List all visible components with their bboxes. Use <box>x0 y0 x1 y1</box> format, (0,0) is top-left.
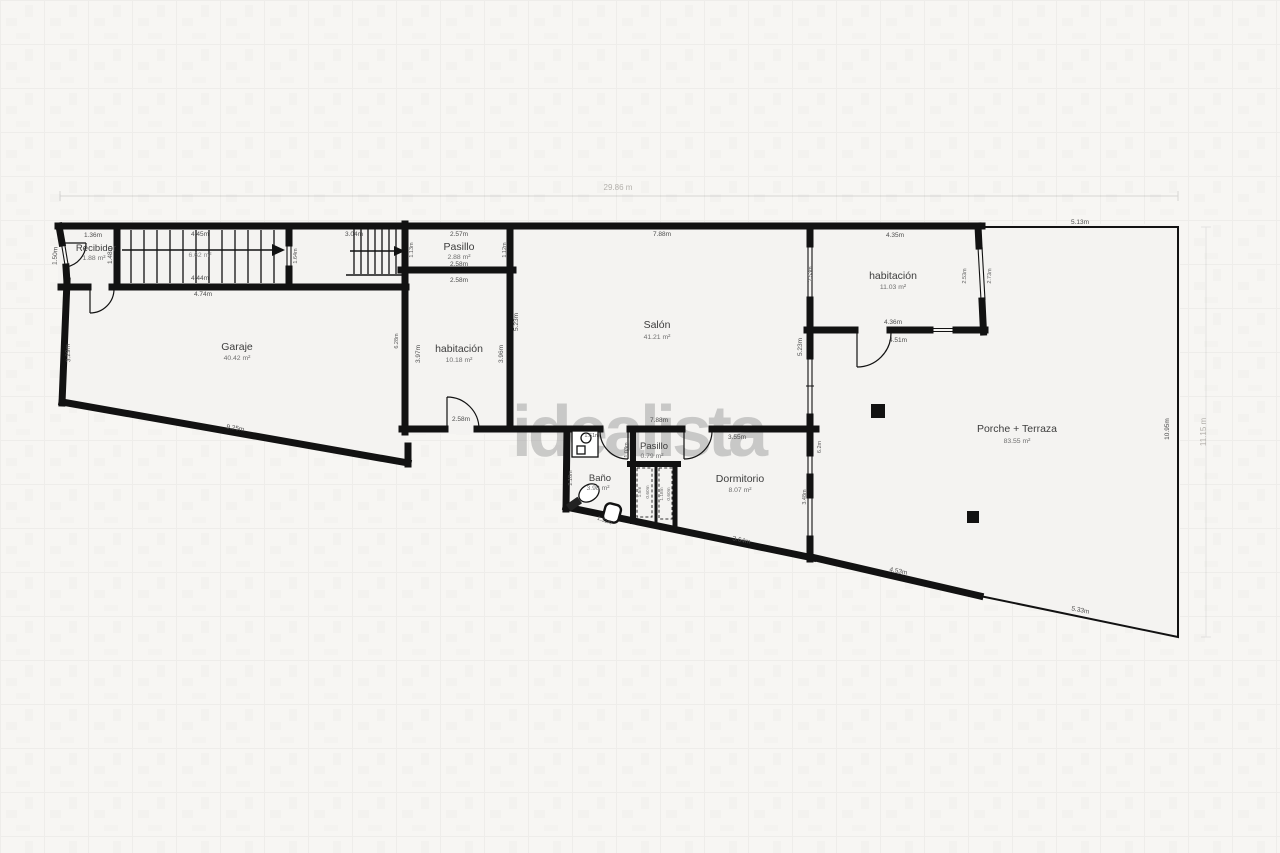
room-area-recibidor: 1.88 m² <box>82 255 106 262</box>
dim-habmid-right: 3.96m <box>498 345 505 363</box>
dim-stairs2-top: 3.04m <box>345 231 363 238</box>
dim-recibidor-left: 1.50m <box>52 247 60 265</box>
dim-pasillo-small-left: 1.03m <box>624 442 630 458</box>
room-area-habitacion-right: 11.03 m² <box>880 284 907 291</box>
room-area-stairs: 6.62 m² <box>188 252 212 259</box>
room-area-pasillo-small: 0.79 m² <box>640 453 664 460</box>
room-name-pasillo-small: Pasillo <box>640 441 668 452</box>
washer-icon <box>577 446 585 454</box>
dim-bano-left: 2.18m <box>568 470 574 486</box>
dim-habr-right-in: 2.53m <box>962 268 969 284</box>
room-area-habitacion-mid: 10.18 m² <box>446 357 474 364</box>
dim-dorm-right: 3.48m <box>802 489 808 505</box>
dim-stairs-bottom: 4.44m <box>191 275 209 282</box>
dim-pasillo-right: 1.12m <box>502 242 508 258</box>
room-area-dormitorio: 8.07 m² <box>728 487 752 494</box>
dim-bano-top: 1.61m <box>584 433 600 439</box>
room-name-dormitorio: Dormitorio <box>716 473 765 485</box>
dim-closet1-w: 0.60m <box>645 485 651 498</box>
dim-habr-left: 2.53m <box>808 266 814 282</box>
room-name-salon: Salón <box>644 319 671 331</box>
dim-habmid-top: 2.58m <box>450 277 468 284</box>
dim-closet2-w: 0.60m <box>666 487 672 500</box>
room-name-habitacion-right: habitación <box>869 270 917 282</box>
dim-recibidor-right: 1.48m <box>107 246 114 264</box>
dim-closet1-h: 1.5m <box>637 487 643 498</box>
room-area-porche: 83.55 m² <box>1004 438 1032 445</box>
dim-garaje-left: 3.29m <box>65 344 73 362</box>
dim-habmid-left: 3.97m <box>415 345 422 363</box>
dim-salon-right: 5.23m <box>797 338 804 356</box>
pillar-icon <box>967 511 979 523</box>
floor-plan-page: 29.86 m 11.15 m idealista <box>0 0 1280 853</box>
dim-salon-bottom: 7.88m <box>650 417 668 424</box>
dim-salon-left: 5.23m <box>513 313 520 331</box>
room-name-garaje: Garaje <box>221 341 253 353</box>
pillar-icon <box>871 404 885 418</box>
dim-habr-below: 4.51m <box>889 337 907 344</box>
dim-habr-top: 4.35m <box>886 232 904 239</box>
room-name-porche: Porche + Terraza <box>977 423 1057 435</box>
room-area-garaje: 40.42 m² <box>224 355 252 362</box>
dim-habr-bottom: 4.36m <box>884 319 902 326</box>
dim-salon-top: 7.88m <box>653 231 671 238</box>
dim-habmid-outer-left: 6.28m <box>394 333 400 349</box>
dim-stairs-top: 4.45m <box>191 231 209 238</box>
dim-stairs-below: 4.74m <box>194 291 212 298</box>
dim-recibidor-top: 1.36m <box>84 232 102 239</box>
dim-porche-left: 6.2m <box>817 440 823 453</box>
dim-habr-right-out: 2.73m <box>987 268 994 284</box>
dim-dorm-top: 3.55m <box>728 434 746 441</box>
dim-porche-top: 5.13m <box>1071 219 1089 226</box>
room-name-habitacion-mid: habitación <box>435 343 483 355</box>
room-name-bano: Baño <box>589 473 611 484</box>
dim-stairs-gap: 1.64m <box>293 248 299 264</box>
dim-closet2-h: 1.18m <box>659 487 665 500</box>
floor-plan: 29.86 m 11.15 m idealista <box>0 0 1280 853</box>
room-area-salon: 41.21 m² <box>644 334 672 341</box>
overall-width-label: 29.86 m <box>604 183 633 192</box>
room-name-pasillo-top: Pasillo <box>444 241 475 253</box>
dim-porche-right: 10.95m <box>1164 418 1171 440</box>
dim-habmid-door: 2.58m <box>452 416 470 423</box>
dim-pasillo-top: 2.57m <box>450 231 468 238</box>
overall-height-label: 11.15 m <box>1199 418 1208 447</box>
dim-pasillo-left: 1.13m <box>409 242 415 258</box>
room-area-bano: 3.98 m² <box>586 485 610 492</box>
dim-pasillo-bottom: 2.58m <box>450 261 468 268</box>
room-area-pasillo-top: 2.88 m² <box>447 254 471 261</box>
